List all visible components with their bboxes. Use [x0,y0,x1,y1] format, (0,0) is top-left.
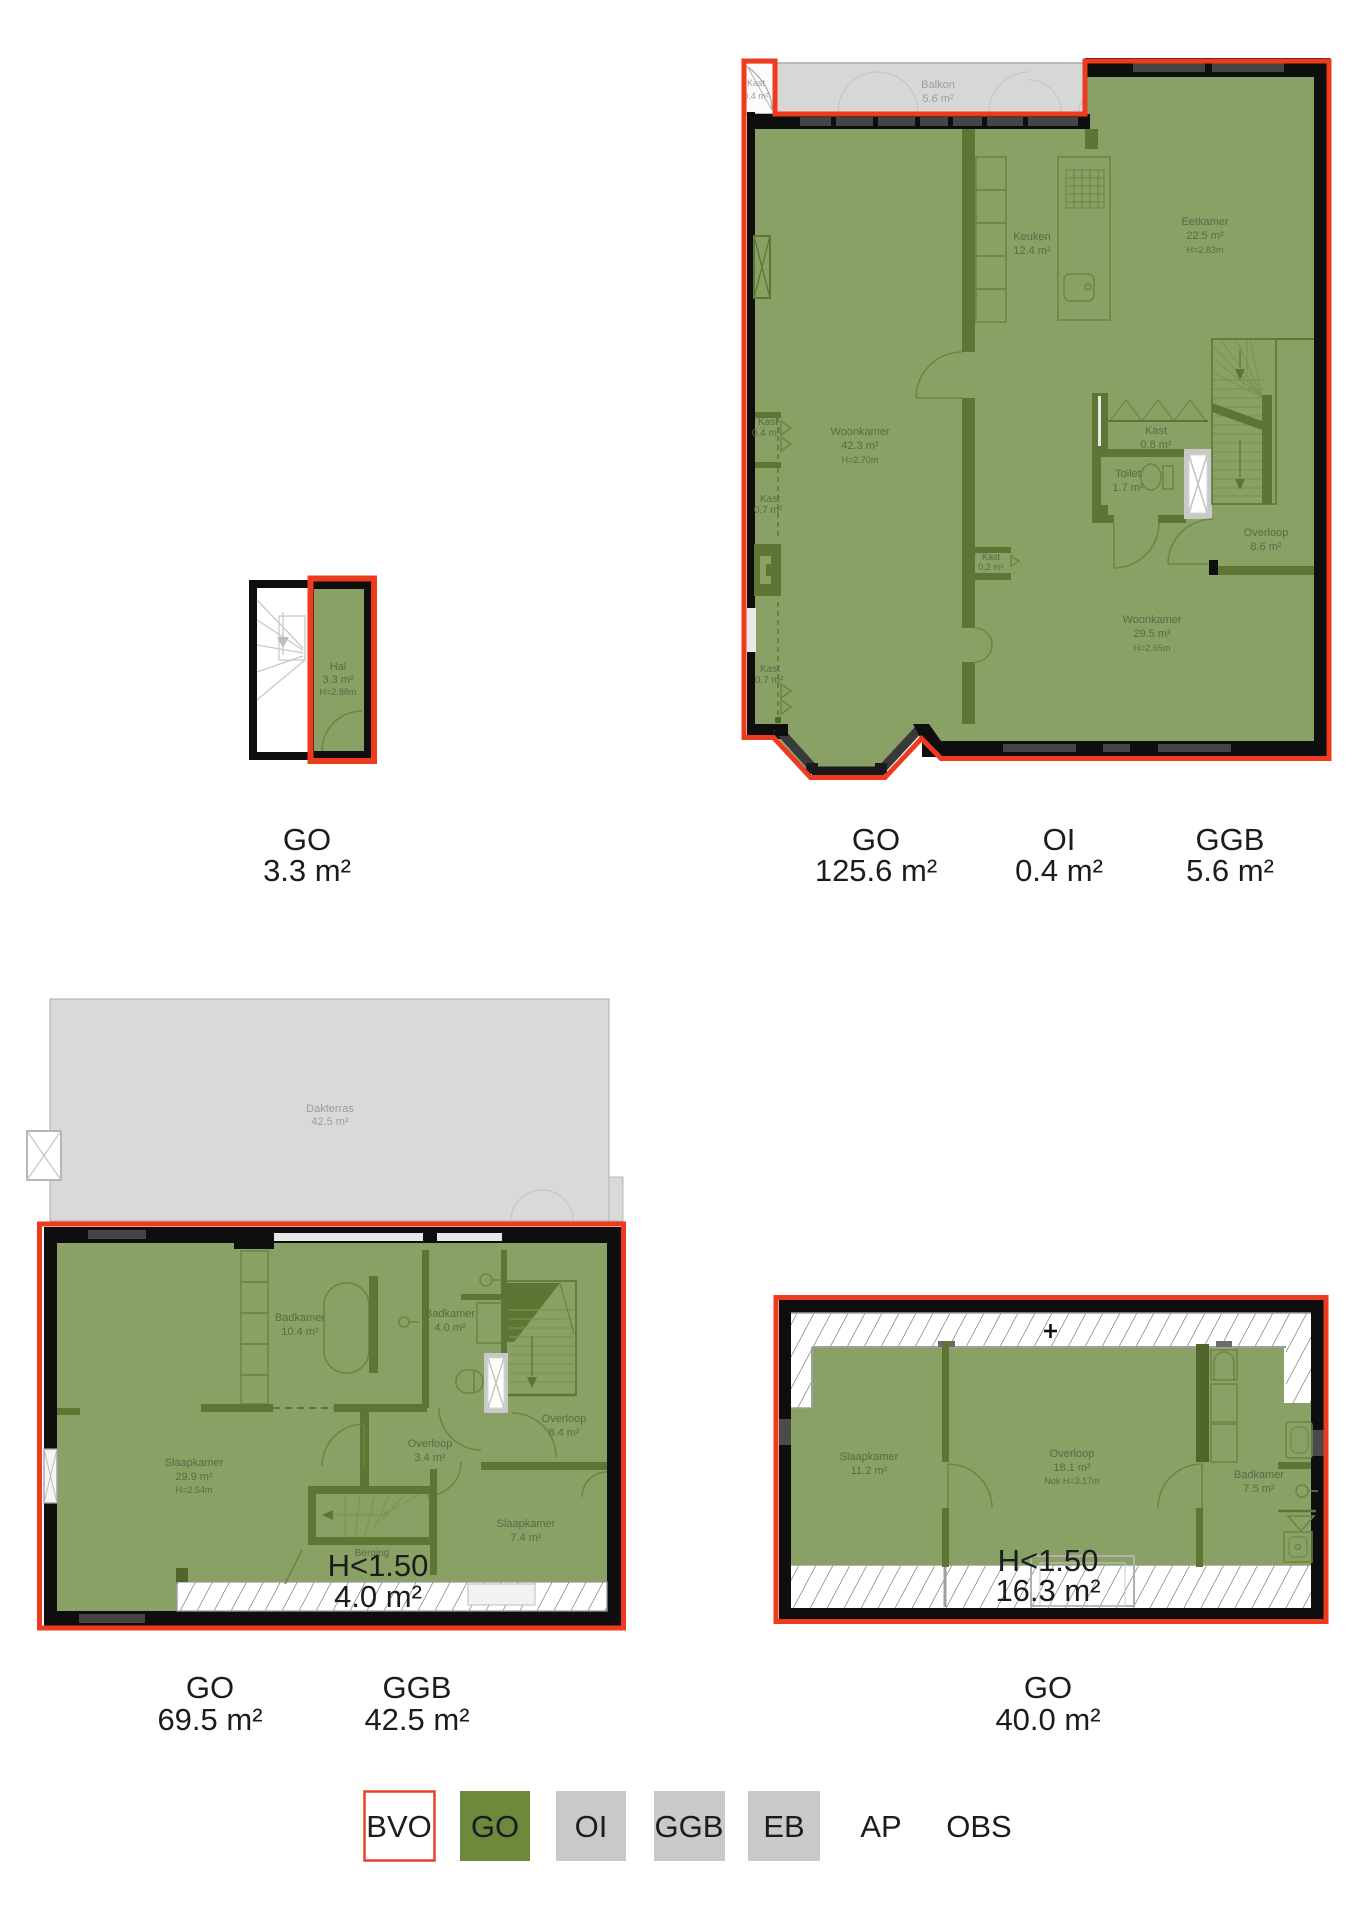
svg-text:GGB: GGB [383,1670,452,1705]
svg-text:Keuken: Keuken [1013,231,1050,243]
svg-text:H=2.65m: H=2.65m [1134,643,1171,653]
svg-text:1.7 m²: 1.7 m² [1112,482,1144,494]
svg-text:Badkamer: Badkamer [275,1312,325,1324]
svg-text:0.7 m²: 0.7 m² [754,505,783,516]
svg-text:29.5 m²: 29.5 m² [1133,628,1171,640]
svg-text:11.2 m²: 11.2 m² [851,1465,888,1477]
svg-text:Slaapkamer: Slaapkamer [497,1518,556,1530]
svg-text:10.4 m²: 10.4 m² [281,1326,319,1338]
svg-text:125.6 m²: 125.6 m² [815,853,937,888]
svg-text:12.4 m²: 12.4 m² [1013,245,1051,257]
svg-text:GO: GO [852,822,900,857]
svg-text:Nok H=3.17m: Nok H=3.17m [1044,1476,1099,1486]
svg-text:Kast: Kast [760,664,780,675]
svg-text:Toilet: Toilet [1115,468,1141,480]
svg-text:0.8 m²: 0.8 m² [1140,439,1172,451]
svg-text:Dakterras: Dakterras [306,1103,354,1115]
svg-text:Overloop: Overloop [1244,527,1289,539]
svg-text:Kast: Kast [982,552,1001,562]
svg-text:GO: GO [283,822,331,857]
svg-text:H=2.83m: H=2.83m [1187,245,1224,255]
svg-text:Hal: Hal [330,661,347,673]
svg-text:GGB: GGB [1196,822,1265,857]
svg-text:Eetkamer: Eetkamer [1181,216,1228,228]
svg-text:Overloop: Overloop [408,1438,453,1450]
svg-text:H=2.54m: H=2.54m [176,1485,213,1495]
svg-text:7.4 m²: 7.4 m² [510,1532,542,1544]
svg-text:8.6 m²: 8.6 m² [1250,541,1282,553]
svg-text:18.1 m²: 18.1 m² [1053,1462,1091,1474]
svg-text:0.4 m²: 0.4 m² [752,428,781,439]
svg-text:H=2.88m: H=2.88m [320,687,357,697]
svg-text:Badkamer: Badkamer [1234,1469,1284,1481]
svg-text:Slaapkamer: Slaapkamer [165,1457,224,1469]
svg-text:3.3 m²: 3.3 m² [263,853,351,888]
svg-text:0.7 m²: 0.7 m² [755,675,784,686]
svg-text:GGB: GGB [655,1809,724,1844]
svg-text:OI: OI [1043,822,1076,857]
svg-text:3.3 m²: 3.3 m² [322,674,354,686]
svg-text:GO: GO [1024,1670,1072,1705]
svg-text:Kast: Kast [747,78,766,88]
svg-text:5.6 m²: 5.6 m² [922,93,954,105]
svg-text:OI: OI [575,1809,608,1844]
svg-text:GO: GO [471,1809,519,1844]
svg-text:Balkon: Balkon [921,79,955,91]
svg-text:42.3 m²: 42.3 m² [841,440,879,452]
svg-text:3.4 m²: 3.4 m² [414,1452,446,1464]
svg-text:0.4 m²: 0.4 m² [1015,853,1103,888]
svg-text:29.9 m²: 29.9 m² [175,1471,213,1483]
svg-text:40.0 m²: 40.0 m² [995,1702,1100,1737]
svg-text:4.0 m²: 4.0 m² [334,1579,422,1614]
svg-text:0.2 m²: 0.2 m² [978,562,1004,572]
svg-text:Slaapkamer: Slaapkamer [840,1451,899,1463]
svg-text:16.3 m²: 16.3 m² [995,1573,1100,1608]
svg-text:AP: AP [860,1809,901,1844]
svg-text:H<1.50: H<1.50 [328,1548,429,1583]
svg-text:EB: EB [763,1809,804,1844]
svg-text:GO: GO [186,1670,234,1705]
svg-text:42.5 m²: 42.5 m² [311,1116,349,1128]
svg-text:Woonkamer: Woonkamer [830,426,889,438]
svg-text:H=2.70m: H=2.70m [842,455,879,465]
svg-text:8.4 m²: 8.4 m² [548,1427,580,1439]
svg-text:69.5 m²: 69.5 m² [157,1702,262,1737]
svg-text:Kast: Kast [760,494,780,505]
svg-text:4.0 m²: 4.0 m² [434,1322,466,1334]
svg-text:Kast: Kast [1145,425,1167,437]
svg-text:42.5 m²: 42.5 m² [364,1702,469,1737]
svg-text:Woonkamer: Woonkamer [1122,614,1181,626]
svg-text:OBS: OBS [946,1809,1011,1844]
svg-text:5.6 m²: 5.6 m² [1186,853,1274,888]
svg-text:Overloop: Overloop [542,1413,587,1425]
svg-text:Badkamer: Badkamer [425,1308,475,1320]
svg-text:Kast: Kast [758,417,778,428]
svg-text:BVO: BVO [366,1809,431,1844]
svg-text:Overloop: Overloop [1050,1448,1095,1460]
svg-text:0.4 m²: 0.4 m² [743,91,769,101]
svg-text:22.5 m²: 22.5 m² [1186,230,1224,242]
svg-text:7.5 m²: 7.5 m² [1243,1483,1275,1495]
